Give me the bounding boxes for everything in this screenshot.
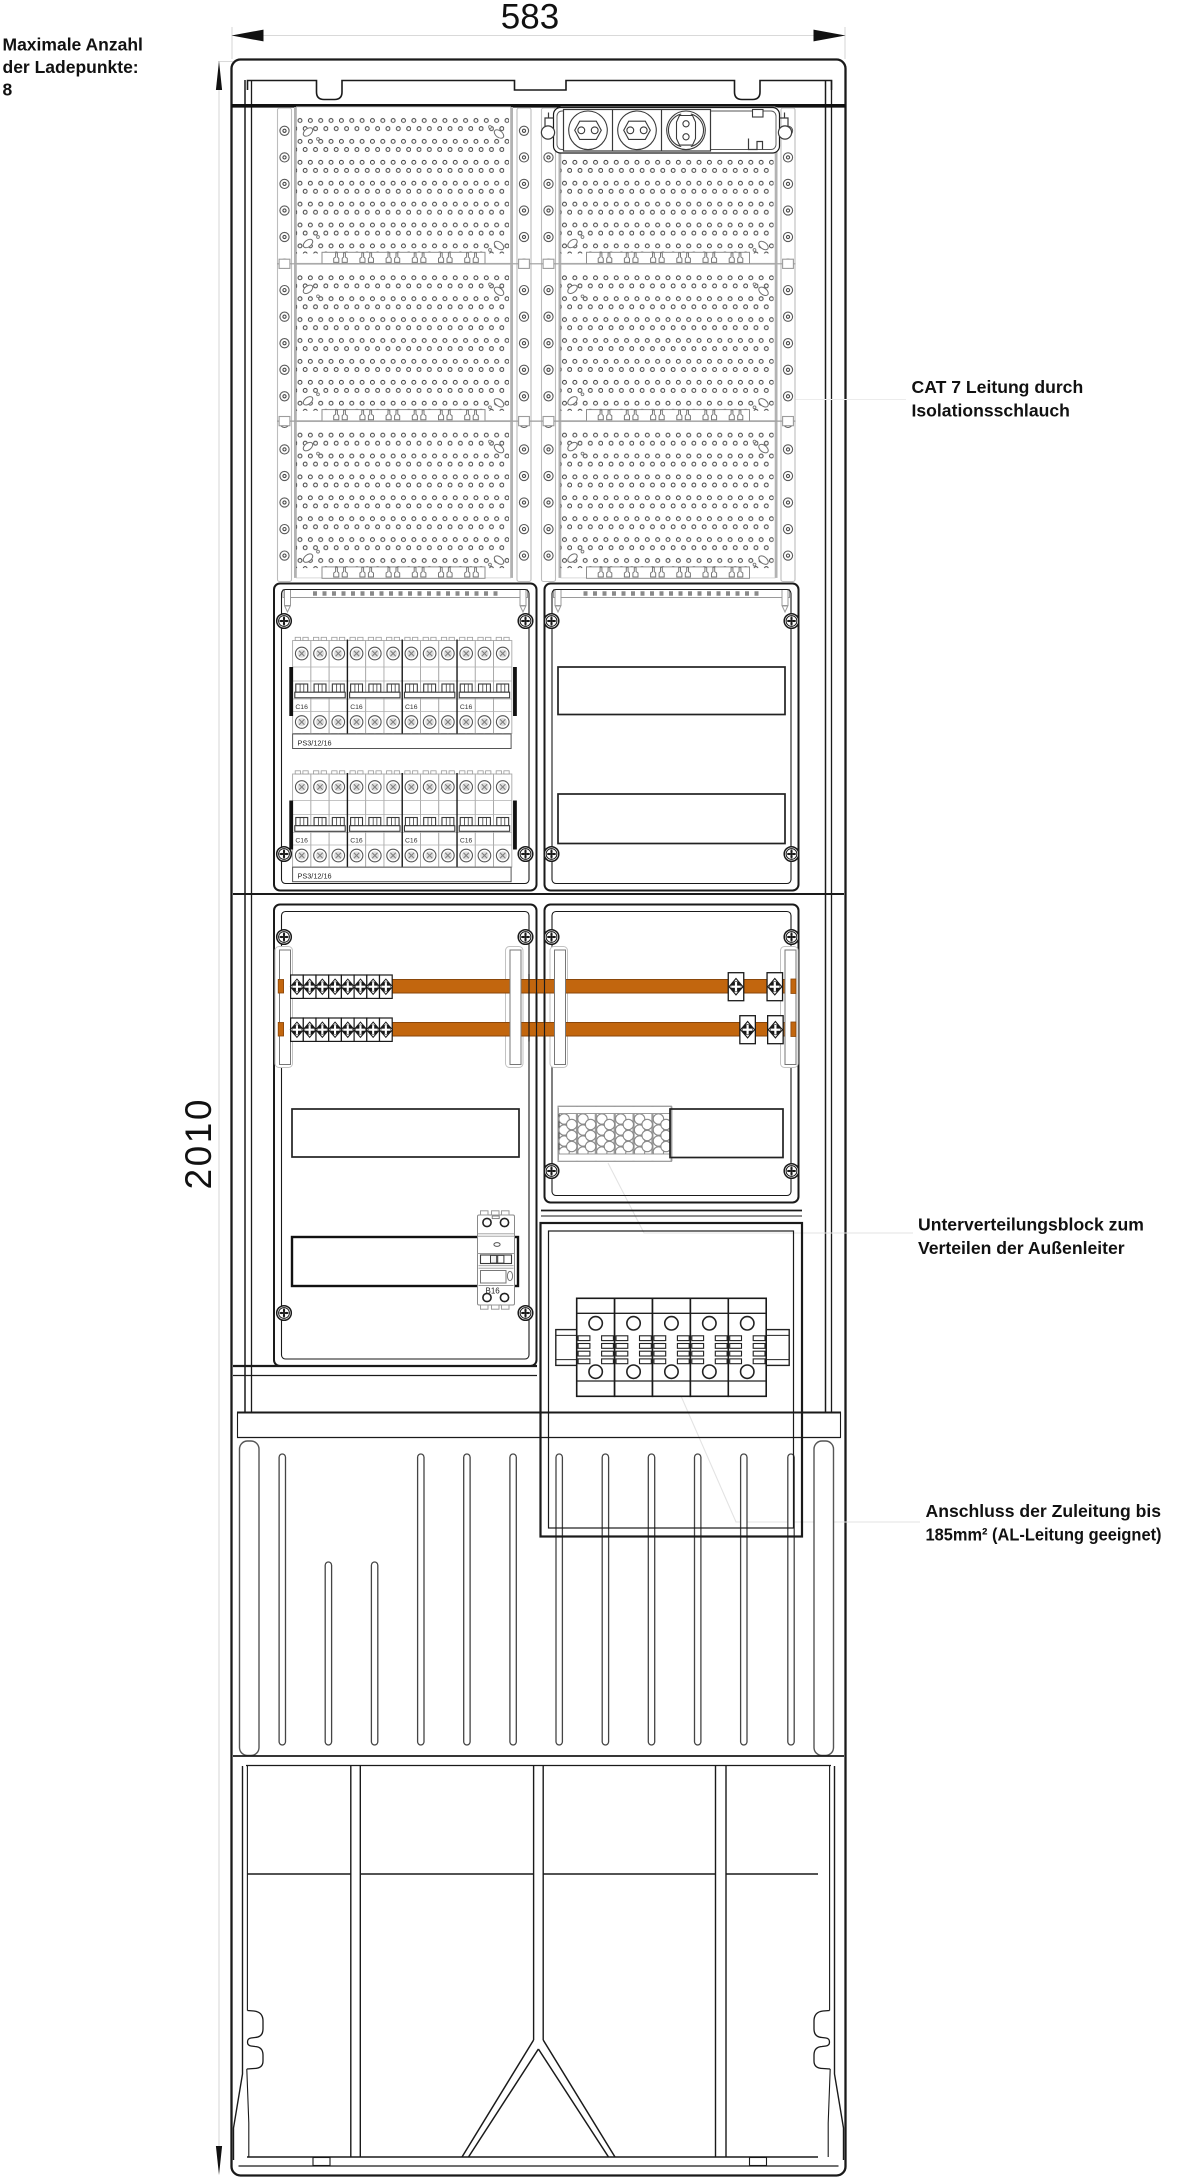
svg-text:Verteilen der Außenleiter: Verteilen der Außenleiter	[918, 1238, 1125, 1258]
svg-text:Anschluss der Zuleitung bis: Anschluss der Zuleitung bis	[926, 1501, 1162, 1521]
svg-text:C16: C16	[295, 838, 308, 845]
svg-text:Unterverteilungsblock zum: Unterverteilungsblock zum	[918, 1215, 1144, 1235]
svg-text:C16: C16	[295, 704, 308, 711]
svg-text:Isolationsschlauch: Isolationsschlauch	[912, 400, 1070, 420]
svg-text:Maximale Anzahl: Maximale Anzahl	[3, 35, 143, 55]
svg-text:185mm² (AL-Leitung geeignet): 185mm² (AL-Leitung geeignet)	[926, 1524, 1162, 1544]
svg-text:C16: C16	[405, 838, 418, 845]
svg-text:C16: C16	[460, 704, 473, 711]
svg-text:PS3/12/16: PS3/12/16	[298, 872, 332, 881]
svg-text:C16: C16	[460, 838, 473, 845]
svg-text:C16: C16	[350, 704, 363, 711]
svg-text:der Ladepunkte:: der Ladepunkte:	[3, 57, 139, 77]
svg-text:PS3/12/16: PS3/12/16	[298, 739, 332, 748]
svg-text:C16: C16	[405, 704, 418, 711]
svg-text:C16: C16	[350, 838, 363, 845]
svg-text:583: 583	[501, 0, 559, 37]
svg-text:8: 8	[3, 80, 13, 100]
svg-text:CAT 7 Leitung durch: CAT 7 Leitung durch	[912, 377, 1084, 397]
